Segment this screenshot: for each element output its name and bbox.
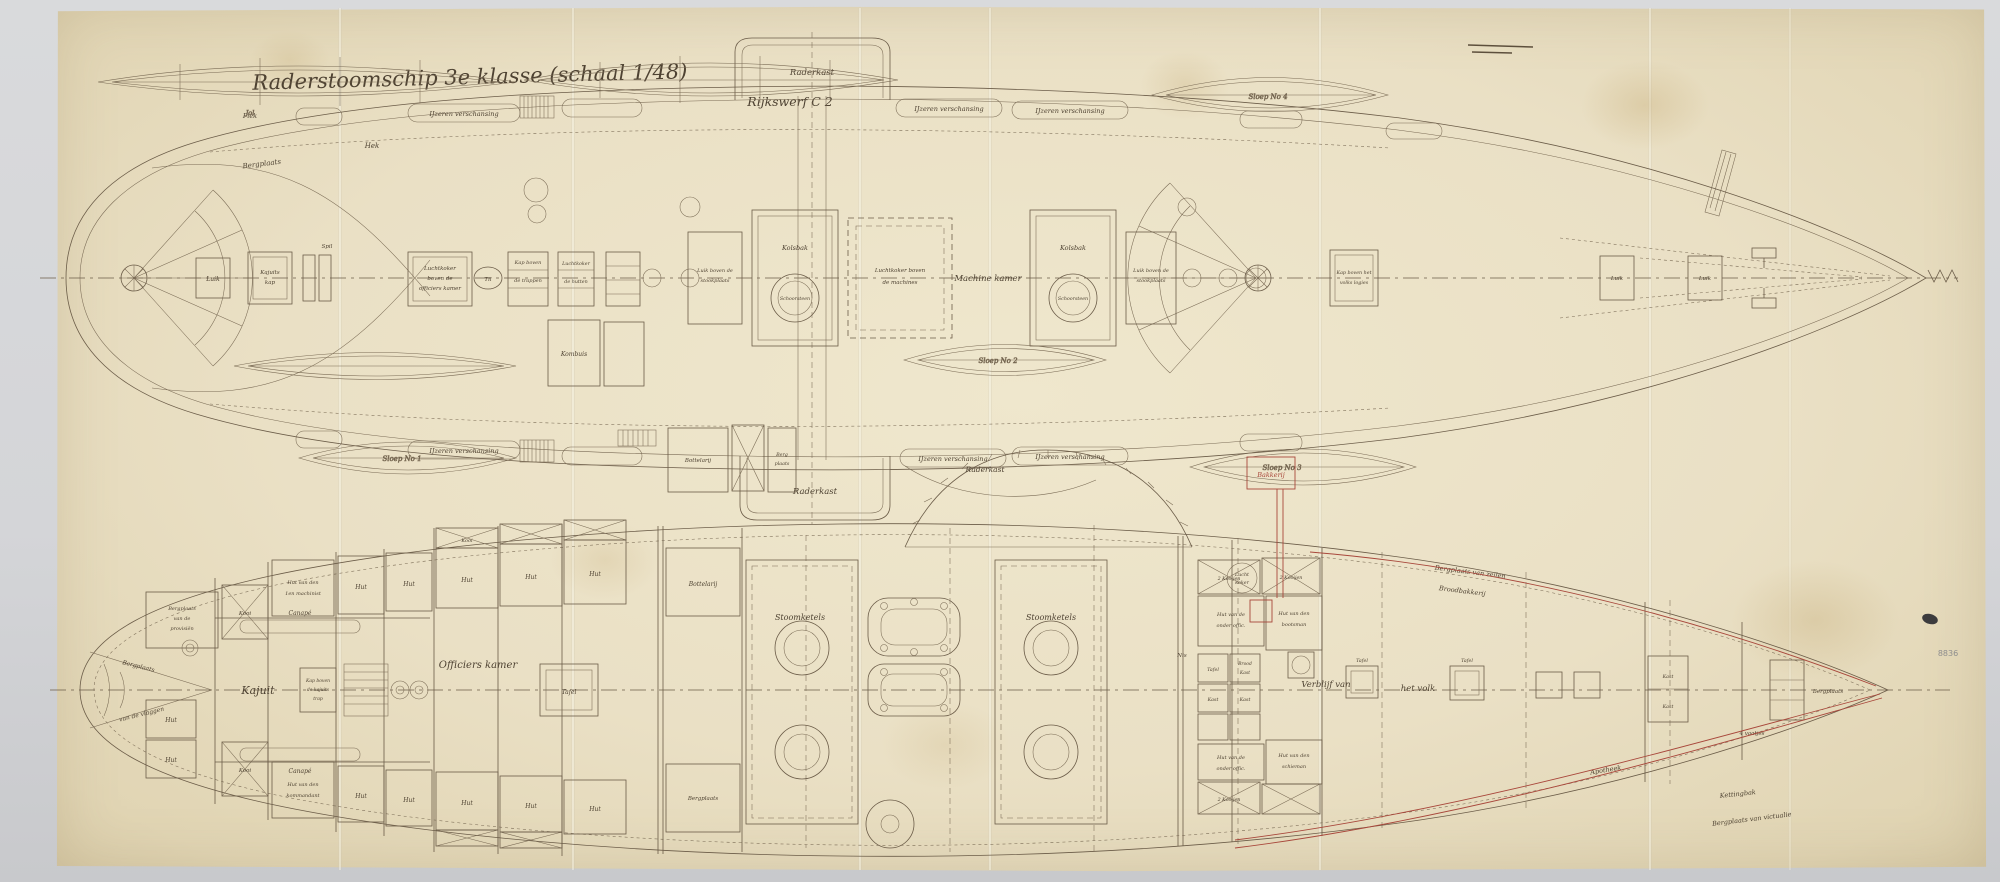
label-broodbakkerij: Broodbakkerij [1438,584,1486,598]
drawing-subtitle: Rijkswerf C 2 [746,94,832,109]
label-kolsbak: Kolsbak [1059,244,1086,252]
label-bakkerij-red: Bakkerij [1256,471,1285,479]
label-kajuits-trap: trap [313,696,323,702]
label-broodkast: Kast [1239,670,1250,676]
label-volkslogies-kap: volks logies [1340,280,1369,286]
rail-lockers-top [296,99,1442,139]
label-stookplaats: stookplaats [1137,278,1166,284]
label-kooi: Kooi [238,611,252,617]
label-tafel: Tafel [562,689,577,696]
label-kap-boven: Kap boven [514,260,542,266]
label-luchtkoker-hutten: de hutten [564,279,587,285]
label-kooijen: 2 Kooijen [1217,576,1241,582]
label-hut: Hut [354,793,367,800]
label-luik: Luik [1610,276,1624,282]
label-kombuis: Kombuis [560,351,587,358]
label-apotheek: Apotheek [1589,764,1622,777]
label-luchtkoker: officiers kamer [419,286,461,292]
label-luik: Luik [1698,276,1712,282]
label-kooijen: 2 Kooijen [1279,575,1303,581]
label-hut: Hut [402,797,415,804]
lower-deck-plan: Raderkast Bergplaats van de vlaggen Berg… [50,450,1950,856]
boat-sloep2: Sloep No 2 [904,345,1106,376]
deck-structures: Luik Kajuits kap Spil Luchtkoker boven d… [196,150,1958,346]
label-hut: Hut [524,803,537,810]
label-hut: Hut [524,574,537,581]
ink-blot [1921,612,1939,626]
ships-boats: Jol Sloep No 4 Sloep No 1 Sloep No 2 Slo… [98,56,1416,485]
label-luchtkoker: boven de [427,276,453,282]
label-bergplaats: Bergplaats [241,158,282,171]
label-schieman: Hut van den [1277,753,1309,759]
label-onderoff: Hut van de [1216,612,1245,618]
label-kast: Kast [1662,704,1674,710]
label-verblijf: het volk [1401,684,1435,694]
label-kajuits-kap: Kajuits [259,270,280,276]
capstan [1245,265,1271,291]
aft-cabins-lower: Hut Hut Kooi Hut van den kommandant Hut … [146,700,432,826]
label-kettingbak: Kettingbak [1718,788,1756,800]
label-broodkast: Brood [1237,661,1252,667]
label-onderoff: onder offic. [1217,766,1246,772]
upper-deck-plan: Raderkast Raderkast [40,32,1958,524]
boiler-engine-room: Stoomketels Stoomketels Lucht koker [746,560,1257,848]
boat-sloep3: Sloep No 3 [1190,449,1416,485]
officers-cabins-upper: Kooi Hut Hut Hut [436,520,626,608]
label-til: Til [484,277,491,283]
officers-wardroom: Officiers kamer Tafel [439,660,598,716]
label-machine-skylight: Luchtkoker boven [874,268,926,274]
kajuit-saloon: Canapé Canapé Kajuit Kap boven de kajuit… [215,610,430,775]
paddle-sponson: Raderkast [905,450,1192,547]
red-ink-additions: Bakkerij [1235,457,1882,848]
label-bergplaats: Bergplaats [687,796,718,802]
label-kooi: Kooi [460,538,473,544]
archive-marks: 8836 [1921,612,1958,658]
label-kommandant: kommandant [286,793,320,799]
label-victualie: Bergplaats van victualie [1711,810,1792,828]
corner-dashes [1468,45,1533,53]
label-sloep2: Sloep No 2 [978,357,1018,365]
label-tafel: Tafel [1356,658,1368,664]
gangway-plank [1705,150,1736,216]
label-canape: Canapé [288,610,311,617]
store-lockers: Nis Tafel Brood Kast Kast Kast [1176,653,1260,740]
label-kast: Kast [1662,674,1674,680]
label-hut: Hut [588,571,601,578]
label-machine-kamer: Machine kamer [953,274,1022,284]
label-hut: Hut [460,577,473,584]
label-tafel: Tafel [1461,658,1473,664]
label-bottelarij: Bottelarij [684,458,711,464]
label-jol: Jol [244,109,255,117]
label-hek: Hek [364,142,380,150]
label-vlaggen: Bergplaats [120,659,155,674]
label-luik: Luik [205,276,220,283]
fore-cabins-lower: Hut van de onder offic. Hut van den schi… [1198,740,1322,814]
label-machinist: 1en machinist [285,591,322,597]
label-provisien: provisiën [170,626,193,632]
label-kommandant: Hut van den [286,782,318,788]
label-onderoff: Hut van de [1216,755,1245,761]
label-raderkast-bottom: Raderkast [792,487,838,497]
label-luchtkoker-hutten: Luchtkoker [561,261,591,267]
label-sloep4: Sloep No 4 [1248,93,1287,101]
label-kap-boven: de trappen [514,278,542,284]
label-machinist: Hut van den [286,580,318,586]
label-stookplaats: Luik boven de [1132,268,1169,274]
label-schieman: schieman [1282,764,1306,770]
pencil-number: 8836 [1938,649,1958,658]
label-bootsman: bootsman [1282,622,1307,628]
aft-cabins-upper: Bergplaats van de provisiën Kooi Hut van… [146,553,432,656]
label-raderkast: Raderkast [965,465,1006,474]
label-kajuit: Kajuit [240,684,275,697]
label-hut: Hut [460,800,473,807]
label-bootsman: Hut van den [1277,611,1309,617]
label-bergplaats-hok: Berg [775,452,788,458]
label-zeilen: Bergplaats van zeilen [1433,564,1506,581]
label-vlaggen: van de vlaggen [118,706,164,724]
label-kast: Kast [1239,697,1251,703]
label-schoorsteen: Schoorsteen [1058,296,1088,302]
label-stookplaats: stookplaats [701,278,730,284]
label-stoomketels: Stoomketels [775,613,825,622]
label-bottelarij: Bottelarij [688,581,718,588]
label-provisien: van de [174,616,191,622]
label-tafel: Tafel [1207,667,1219,673]
boat-sloep4: Sloep No 4 [1152,78,1388,112]
label-sloep1: Sloep No 1 [382,455,421,463]
label-bergplaats: Bergplaats [1812,689,1843,695]
label-rail: IJzeren verschansing [1034,453,1104,461]
label-hut: Hut [164,717,177,724]
label-schoorsteen: Schoorsteen [780,296,810,302]
stem-hatch [1928,270,1958,282]
label-rail: IJzeren verschansing [913,105,983,113]
officers-cabins-lower: Hut Hut Hut [436,772,626,848]
label-canape: Canapé [288,768,311,775]
label-kajuits-trap: Kap boven [305,678,330,684]
label-rail: IJzeren verschansing [1034,107,1104,115]
label-kooijen: 2 Kooijen [1217,797,1241,803]
label-kajuits-trap: de kajuits [307,687,330,693]
label-onderoff: onder offic. [1217,623,1246,629]
label-kajuits-kap: kap [265,280,276,286]
label-bergplaats-hok: plaats [775,461,790,467]
label-officiers-kamer: Officiers kamer [439,660,519,671]
ship-plan-drawing: Raderstoomschip 3e klasse (schaal 1/48) … [0,0,2000,882]
crew-space: Verblijf van het volk Tafel Tafel Kast K… [1301,656,1843,737]
label-stoomketels: Stoomketels [1026,613,1076,622]
label-stookplaats: Luik boven de [696,268,733,274]
label-rail: IJzeren verschansing [428,110,498,118]
label-verblijf: Verblijf van [1301,680,1350,690]
label-machine-skylight: de machines [882,280,917,286]
paddle-box-top: Raderkast [735,38,890,100]
label-hut: Hut [354,584,367,591]
label-kooi: Kooi [238,768,252,774]
label-kolsbak: Kolsbak [781,244,808,252]
label-kast: Kast [1207,697,1219,703]
label-hut: Hut [588,806,601,813]
label-volkslogies-kap: Kap boven het [1335,270,1371,276]
label-rail: IJzeren verschansing [917,455,987,463]
label-nis: Nis [1176,653,1187,659]
boat-aft-port [234,353,516,380]
engine-frames [866,598,960,848]
label-provisien: Bergplaats [167,606,196,612]
label-hut: Hut [164,757,177,764]
label-luchtkoker: Luchtkoker [423,266,456,272]
label-hut: Hut [402,581,415,588]
label-spil: Spil [322,244,333,250]
